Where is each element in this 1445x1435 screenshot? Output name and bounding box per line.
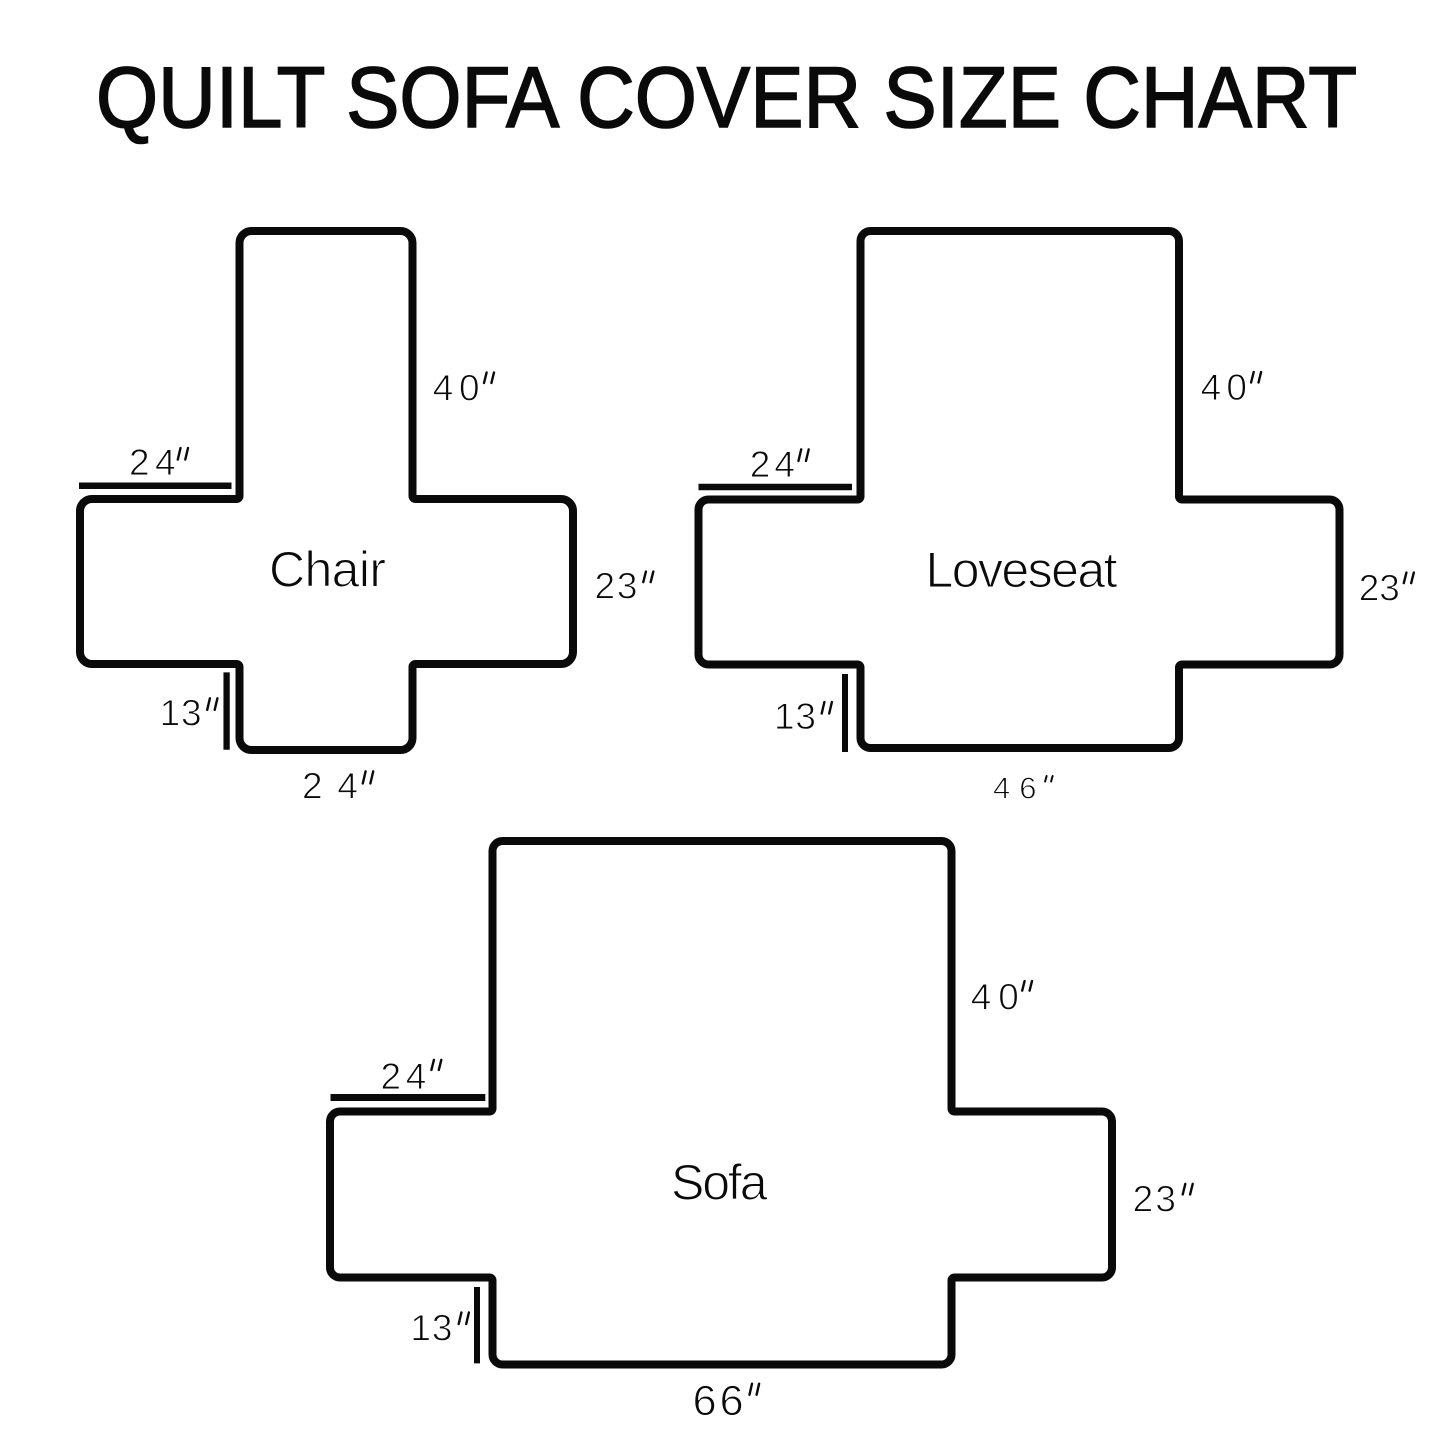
svg-text:13: 13	[774, 696, 816, 737]
svg-text:Loveseat: Loveseat	[926, 542, 1118, 598]
svg-text:23: 23	[1359, 568, 1400, 609]
svg-text:23: 23	[595, 566, 638, 607]
svg-text:Chair: Chair	[269, 542, 386, 598]
svg-text:Sofa: Sofa	[671, 1154, 768, 1210]
svg-text:13: 13	[410, 1307, 452, 1348]
svg-text:13: 13	[160, 693, 202, 734]
svg-text:QUILT SOFA COVER SIZE CHART: QUILT SOFA COVER SIZE CHART	[96, 50, 1357, 146]
